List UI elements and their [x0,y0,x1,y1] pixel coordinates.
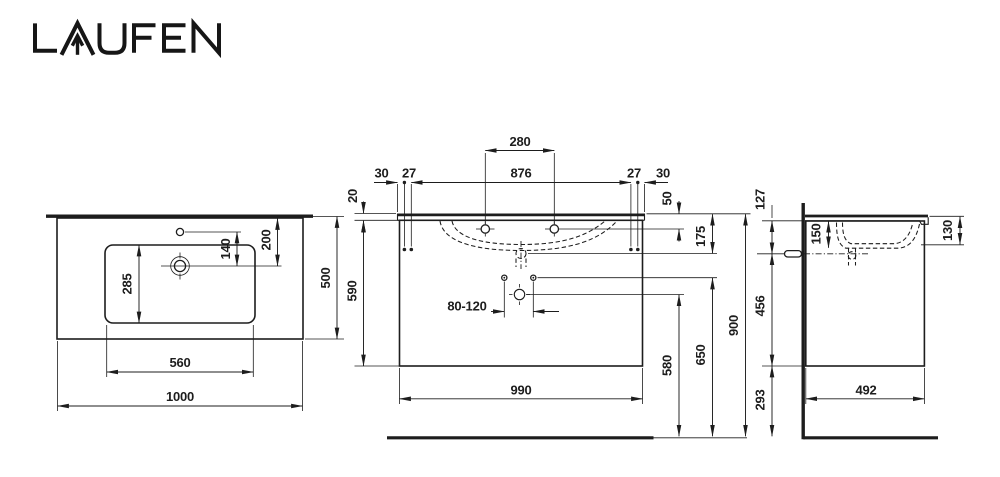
front-view: 280 30 27 876 27 30 20 [345,134,751,438]
dim-label-fixing-gap-left: 27 [402,166,416,181]
dim-label-connection-to-bottom: 456 [753,295,768,316]
dim-label-trap-outlet-height: 580 [660,355,675,376]
plan-view: 140 200 285 500 560 1000 [46,216,344,411]
dim-label-cabinet-depth: 492 [855,383,876,398]
laufen-logo: LAUFEN [35,23,219,55]
technical-drawing-page: LAUFEN 140 [0,0,1000,477]
dim-label-front-edge-height: 130 [940,220,955,241]
dim-label-overall-height: 900 [726,315,741,336]
front-bowl-hidden-lines [440,221,617,251]
dim-label-cabinet-height: 590 [345,280,360,301]
plan-tap-hole-symbol [176,228,241,235]
dim-label-edge-to-fixing-right: 30 [656,166,670,181]
side-wall-connection-symbol [757,251,802,257]
dim-label-supply-spacing: 80-120 [447,299,486,314]
front-drain-symbol [516,241,717,269]
dim-label-overall-depth: 500 [318,267,333,288]
dim-label-bottom-to-floor: 293 [753,389,768,410]
dim-label-fixing-hole-spacing: 876 [510,166,531,181]
dim-label-overall-width: 1000 [166,389,194,404]
side-view: 127 456 293 150 130 492 [753,189,965,439]
dim-label-top-to-tap-hole: 50 [660,191,675,205]
dim-label-basin-width: 560 [169,355,190,370]
dim-label-tap-hole-spacing: 280 [509,134,530,149]
dim-label-edge-to-fixing-left: 30 [374,166,388,181]
dim-label-top-to-connection: 127 [753,189,768,210]
dim-label-top-to-overflow: 175 [693,226,708,247]
side-dimensions: 127 456 293 150 130 492 [753,189,965,436]
dim-label-cabinet-width: 990 [510,383,531,398]
dim-label-basin-depth: 285 [120,273,135,294]
drawing-canvas: LAUFEN 140 [0,0,1000,477]
dim-label-top-thickness: 20 [345,189,360,203]
dim-label-supply-height: 650 [693,344,708,365]
front-waste-outlet-symbol [509,284,684,305]
front-tap-hole-symbols [476,222,684,237]
side-cabinet [806,221,925,366]
front-dimensions: 280 30 27 876 27 30 20 [345,134,751,436]
dim-label-top-to-drain: 150 [809,223,824,244]
dim-label-fixing-gap-right: 27 [627,166,641,181]
dim-label-edge-to-drain: 200 [259,229,274,250]
dim-label-hole-to-drain: 140 [218,238,233,259]
